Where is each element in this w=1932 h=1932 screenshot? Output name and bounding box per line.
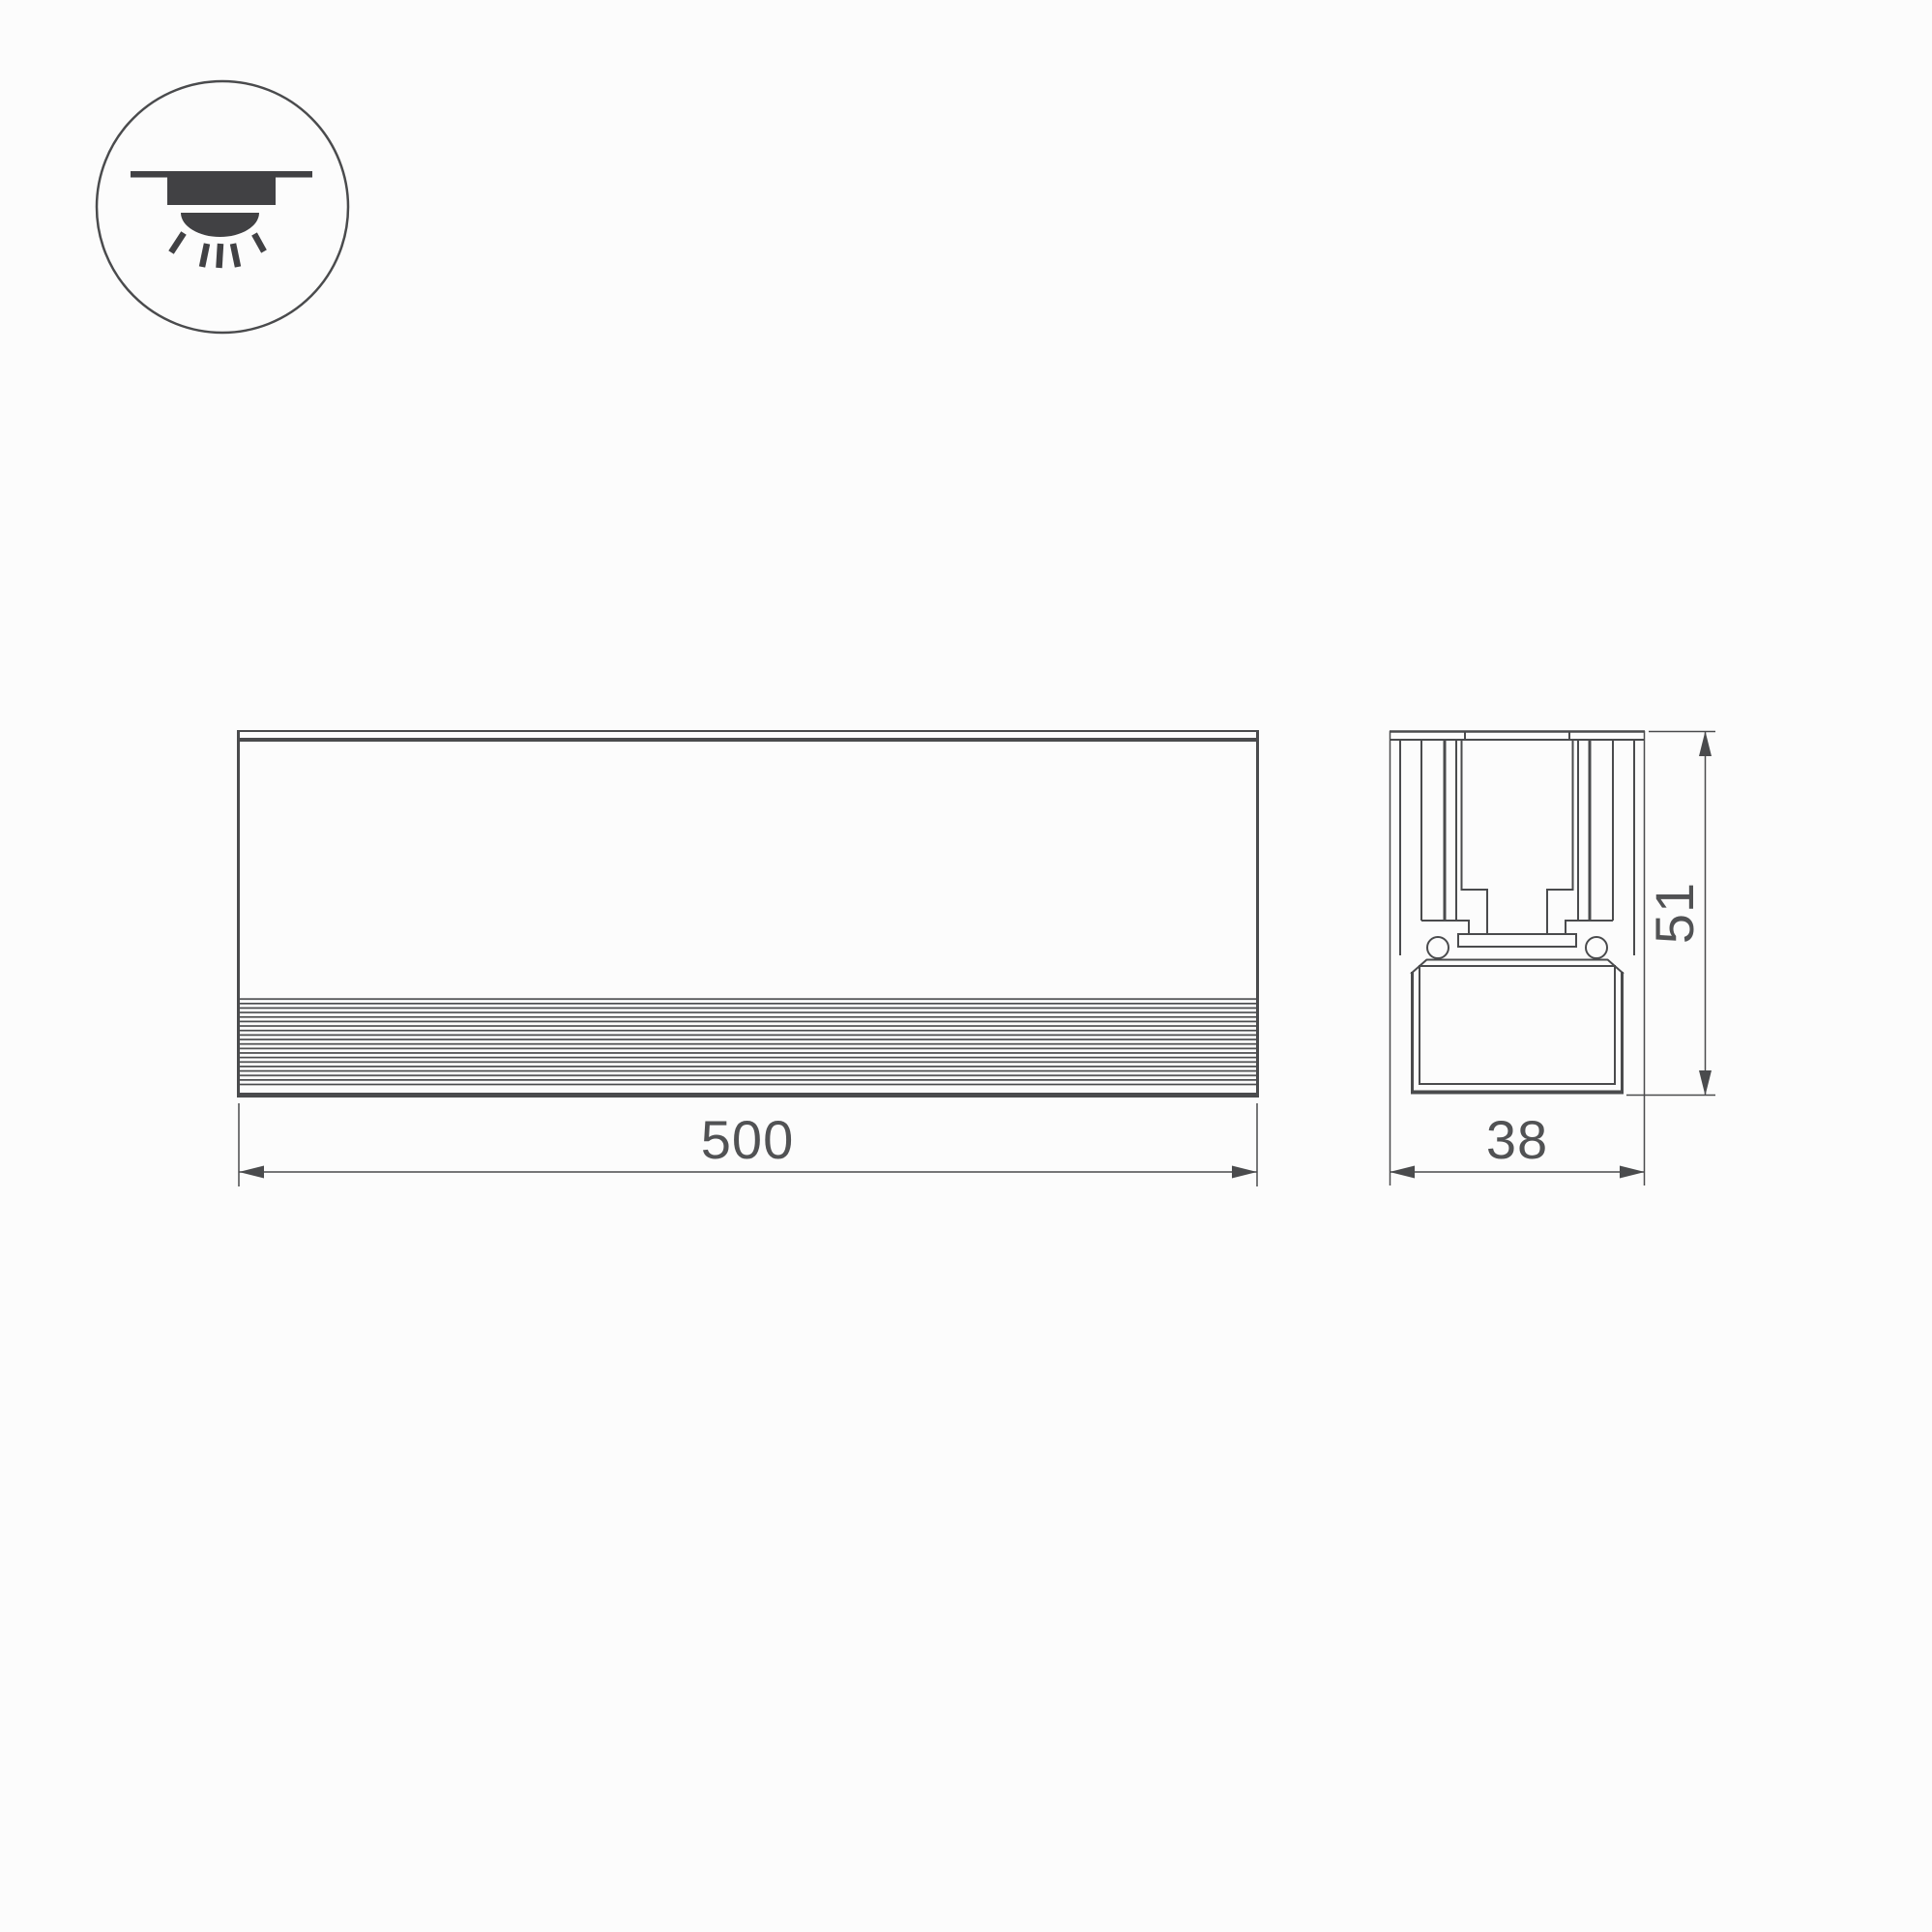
recessed-downlight-icon	[97, 81, 348, 333]
arrowhead-right	[1620, 1166, 1645, 1179]
drawing-svg: 500	[0, 0, 1932, 1932]
dimension-length-label: 500	[701, 1109, 794, 1170]
arrowhead-top	[1699, 731, 1712, 756]
recessed-body	[167, 177, 276, 205]
dimension-length: 500	[239, 1103, 1257, 1186]
dimension-width-label: 38	[1486, 1109, 1548, 1170]
dimension-height: 51	[1626, 731, 1715, 1096]
diffuser-ribs	[240, 997, 1256, 1087]
clip-ear-right	[1586, 937, 1607, 958]
ceiling-line	[131, 171, 312, 178]
housing-inner-wall	[1420, 966, 1615, 1084]
front-view	[237, 731, 1259, 1097]
arrowhead-bottom	[1699, 1070, 1712, 1096]
icon-circle	[97, 81, 348, 333]
clip-ear-left	[1427, 937, 1449, 958]
lamp-dome	[181, 213, 259, 237]
arrowhead-right	[1232, 1166, 1257, 1179]
arrowhead-left	[1390, 1166, 1415, 1179]
dimension-height-label: 51	[1644, 882, 1705, 944]
light-rays	[171, 233, 264, 268]
dimension-width: 38	[1390, 1109, 1645, 1179]
technical-drawing-canvas: 500	[0, 0, 1932, 1932]
arrowhead-left	[239, 1166, 264, 1179]
carrier-plate	[1458, 934, 1576, 947]
